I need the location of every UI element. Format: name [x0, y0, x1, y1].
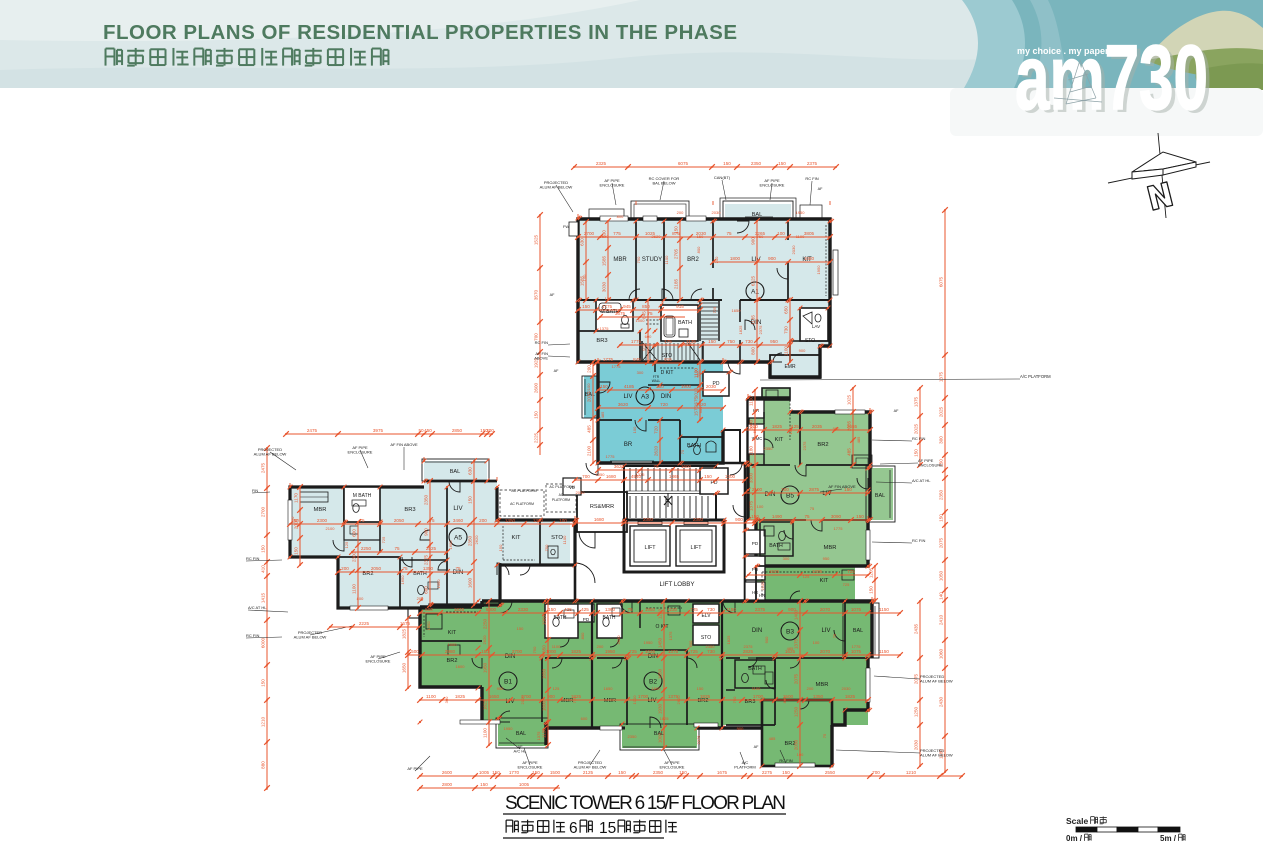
svg-text:3460: 3460	[453, 518, 464, 523]
svg-text:2300: 2300	[352, 551, 357, 562]
svg-text:900: 900	[764, 636, 769, 643]
svg-text:BAL: BAL	[875, 493, 885, 499]
svg-text:BR3: BR3	[596, 338, 607, 344]
svg-text:450: 450	[424, 428, 432, 433]
svg-text:100: 100	[559, 518, 567, 523]
svg-text:HR: HR	[759, 593, 765, 598]
svg-text:ENCLOSURE: ENCLOSURE	[660, 765, 685, 770]
svg-text:2350: 2350	[693, 517, 704, 522]
svg-text:1100: 1100	[552, 644, 561, 649]
svg-text:1375: 1375	[749, 500, 754, 511]
svg-text:1250: 1250	[914, 706, 919, 717]
svg-text:1000: 1000	[546, 649, 557, 654]
svg-text:PLATFORM: PLATFORM	[734, 765, 755, 770]
svg-text:1350: 1350	[505, 518, 516, 523]
svg-text:1625: 1625	[483, 699, 488, 710]
svg-text:1950: 1950	[645, 607, 656, 612]
svg-text:1625: 1625	[769, 569, 780, 574]
svg-text:1775: 1775	[606, 454, 616, 459]
svg-text:D KIT: D KIT	[661, 370, 674, 376]
svg-text:1650: 1650	[402, 662, 407, 673]
svg-text:1700: 1700	[638, 694, 649, 699]
svg-text:2100: 2100	[326, 526, 336, 531]
svg-text:750: 750	[732, 696, 737, 703]
svg-text:485: 485	[600, 411, 605, 418]
svg-text:STUDY: STUDY	[642, 257, 662, 263]
svg-text:AF PIPE: AF PIPE	[407, 766, 423, 771]
svg-text:1775: 1775	[834, 526, 844, 531]
svg-text:FLOOR PLANS OF RESIDENTIAL PRO: FLOOR PLANS OF RESIDENTIAL PROPERTIES IN…	[103, 21, 737, 44]
svg-text:2620: 2620	[474, 535, 479, 545]
svg-text:2350: 2350	[706, 644, 716, 649]
svg-text:RC FIN: RC FIN	[805, 176, 818, 181]
svg-text:1675: 1675	[717, 770, 728, 775]
svg-text:1100: 1100	[694, 368, 699, 378]
svg-text:1100: 1100	[562, 535, 567, 544]
svg-text:LIV: LIV	[453, 505, 463, 512]
svg-text:BAL: BAL	[752, 212, 763, 218]
svg-text:2375: 2375	[802, 441, 807, 451]
svg-text:720: 720	[654, 426, 659, 434]
svg-text:ELV: ELV	[701, 613, 711, 619]
svg-text:2070: 2070	[820, 607, 831, 612]
svg-text:2350: 2350	[628, 734, 638, 739]
svg-text:485: 485	[847, 448, 852, 456]
svg-text:485: 485	[587, 425, 592, 433]
svg-text:LIFT: LIFT	[690, 545, 702, 551]
svg-text:RC FIN: RC FIN	[535, 340, 548, 345]
svg-text:AF FIN ABOVE: AF FIN ABOVE	[390, 442, 418, 447]
svg-text:1825: 1825	[454, 607, 465, 612]
svg-text:150: 150	[856, 514, 864, 519]
svg-text:2620: 2620	[676, 695, 681, 705]
svg-text:150: 150	[517, 626, 524, 631]
svg-text:3620: 3620	[618, 402, 629, 407]
svg-text:BATH: BATH	[603, 615, 616, 621]
svg-text:300: 300	[783, 556, 790, 561]
svg-text:2350: 2350	[764, 446, 774, 451]
svg-text:2375: 2375	[744, 644, 754, 649]
svg-text:BATH: BATH	[554, 615, 567, 621]
svg-text:725: 725	[629, 649, 637, 654]
svg-text:150: 150	[480, 782, 488, 787]
svg-text:125: 125	[605, 296, 612, 301]
svg-text:485: 485	[769, 736, 776, 741]
svg-text:2250: 2250	[483, 618, 488, 629]
svg-text:300: 300	[637, 370, 644, 375]
svg-text:BR2: BR2	[698, 698, 709, 704]
svg-text:1585: 1585	[602, 255, 607, 266]
svg-text:900: 900	[751, 237, 756, 245]
svg-text:200: 200	[587, 365, 592, 373]
svg-text:75: 75	[832, 633, 837, 638]
svg-text:425: 425	[564, 607, 572, 612]
svg-text:1005: 1005	[519, 782, 530, 787]
svg-text:1250: 1250	[794, 706, 799, 717]
svg-text:300: 300	[781, 487, 789, 492]
svg-text:2825: 2825	[743, 649, 754, 654]
svg-text:1230: 1230	[667, 607, 678, 612]
svg-text:PLATFORM: PLATFORM	[552, 498, 570, 502]
svg-text:SCENIC TOWER 6 15/F FLOOR PLA: SCENIC TOWER 6 15/F FLOOR PLAN	[505, 793, 786, 814]
svg-text:1210: 1210	[906, 770, 917, 775]
svg-text:1150: 1150	[726, 607, 736, 612]
svg-text:6075: 6075	[939, 276, 944, 287]
svg-text:2705: 2705	[674, 248, 679, 259]
svg-text:6000: 6000	[261, 637, 266, 648]
svg-text:880: 880	[261, 761, 266, 769]
svg-text:1000: 1000	[436, 579, 441, 589]
svg-text:BR: BR	[624, 442, 633, 448]
svg-text:1415: 1415	[261, 592, 266, 603]
svg-text:2600: 2600	[534, 382, 539, 393]
svg-text:3090: 3090	[831, 514, 842, 519]
svg-text:100: 100	[777, 231, 785, 236]
svg-text:1365: 1365	[669, 474, 680, 479]
svg-text:AF: AF	[550, 293, 556, 297]
svg-text:150: 150	[708, 339, 716, 344]
svg-text:1900: 1900	[681, 384, 692, 389]
svg-text:2075: 2075	[939, 537, 944, 548]
svg-text:2030: 2030	[576, 490, 586, 495]
svg-text:3570: 3570	[534, 289, 539, 300]
svg-text:6: 6	[569, 820, 578, 837]
svg-text:2030: 2030	[794, 739, 799, 750]
svg-text:1950: 1950	[483, 662, 488, 673]
svg-text:2525: 2525	[426, 546, 437, 551]
svg-text:75: 75	[680, 449, 685, 454]
svg-text:2300: 2300	[317, 518, 328, 523]
svg-text:1825: 1825	[738, 325, 743, 335]
svg-text:STO: STO	[805, 338, 815, 344]
svg-text:1650: 1650	[732, 308, 742, 313]
svg-text:1600: 1600	[652, 686, 662, 691]
svg-text:730: 730	[745, 339, 753, 344]
svg-text:845: 845	[633, 357, 641, 362]
svg-text:2350: 2350	[643, 517, 654, 522]
svg-text:1000: 1000	[658, 732, 663, 743]
svg-text:AC PLATFORM: AC PLATFORM	[511, 489, 536, 493]
svg-text:A5: A5	[454, 534, 462, 541]
svg-text:1650: 1650	[658, 668, 663, 679]
svg-text:1375: 1375	[668, 649, 679, 654]
svg-text:2875: 2875	[809, 487, 820, 492]
svg-text:MBR: MBR	[604, 698, 616, 704]
svg-text:PD: PD	[583, 617, 590, 622]
svg-text:150: 150	[697, 686, 704, 691]
svg-text:1700: 1700	[753, 694, 764, 699]
svg-text:800: 800	[751, 347, 756, 355]
svg-text:200: 200	[597, 644, 604, 649]
svg-text:75: 75	[804, 514, 810, 519]
svg-text:915: 915	[676, 304, 684, 309]
svg-text:1650: 1650	[489, 694, 500, 699]
svg-text:2035: 2035	[847, 420, 852, 431]
svg-text:RC FIN: RC FIN	[246, 633, 259, 638]
svg-text:75: 75	[394, 546, 400, 551]
svg-text:1680: 1680	[606, 474, 617, 479]
svg-text:1825: 1825	[772, 424, 783, 429]
svg-text:150: 150	[261, 545, 266, 553]
svg-text:900: 900	[424, 528, 429, 536]
svg-text:140: 140	[939, 592, 944, 600]
svg-text:RC FIN: RC FIN	[246, 556, 259, 561]
svg-text:485: 485	[856, 436, 861, 443]
svg-text:2350: 2350	[751, 161, 762, 166]
svg-text:ALUM AF BELOW: ALUM AF BELOW	[920, 753, 953, 758]
svg-text:RC FIN: RC FIN	[912, 538, 925, 543]
svg-text:2330: 2330	[518, 607, 529, 612]
svg-text:175: 175	[664, 339, 672, 344]
svg-text:2375: 2375	[758, 325, 763, 335]
svg-text:1770: 1770	[509, 770, 520, 775]
svg-text:2030: 2030	[616, 635, 621, 645]
svg-text:150: 150	[778, 161, 786, 166]
svg-text:PD: PD	[711, 480, 718, 486]
svg-text:ALUM AF BELOW: ALUM AF BELOW	[574, 765, 607, 770]
svg-text:1250: 1250	[658, 608, 663, 619]
svg-text:75: 75	[810, 506, 815, 511]
svg-text:2350: 2350	[468, 535, 473, 546]
svg-text:LIFT: LIFT	[644, 545, 656, 551]
svg-text:1075: 1075	[851, 607, 862, 612]
svg-text:725: 725	[381, 536, 386, 543]
svg-text:2350: 2350	[653, 770, 664, 775]
svg-text:800: 800	[357, 596, 364, 601]
svg-text:1100: 1100	[352, 584, 357, 594]
svg-text:1010: 1010	[694, 387, 699, 398]
svg-text:150: 150	[704, 474, 712, 479]
svg-text:1825: 1825	[660, 716, 670, 721]
svg-text:1000: 1000	[632, 695, 637, 705]
svg-text:1950: 1950	[796, 210, 806, 215]
svg-text:RC FIN: RC FIN	[912, 436, 925, 441]
svg-text:2030: 2030	[842, 686, 852, 691]
svg-text:1100: 1100	[483, 728, 488, 738]
svg-text:150: 150	[600, 384, 608, 389]
svg-text:150: 150	[869, 586, 874, 594]
svg-text:150: 150	[548, 607, 556, 612]
svg-text:1950: 1950	[816, 265, 821, 275]
svg-text:150: 150	[618, 770, 626, 775]
svg-text:KIT: KIT	[820, 578, 829, 584]
svg-text:750: 750	[636, 256, 641, 263]
svg-text:1600: 1600	[681, 464, 692, 469]
svg-text:200: 200	[479, 518, 487, 523]
svg-text:3805: 3805	[804, 231, 815, 236]
svg-text:2100: 2100	[586, 383, 591, 393]
svg-text:PD: PD	[752, 541, 759, 546]
svg-text:1060: 1060	[939, 648, 944, 659]
svg-text:5m /: 5m /	[1160, 834, 1177, 843]
svg-text:2275: 2275	[762, 770, 773, 775]
svg-text:150: 150	[492, 770, 500, 775]
svg-text:2030: 2030	[712, 210, 722, 215]
svg-text:1650: 1650	[604, 686, 614, 691]
svg-text:MBR: MBR	[824, 545, 837, 551]
svg-text:1775: 1775	[602, 304, 613, 309]
svg-text:1350: 1350	[813, 694, 824, 699]
svg-text:915: 915	[664, 357, 672, 362]
svg-text:1100: 1100	[784, 346, 789, 356]
svg-text:2350: 2350	[686, 342, 696, 347]
svg-text:2980: 2980	[445, 649, 456, 654]
svg-text:1210: 1210	[261, 716, 266, 727]
svg-text:100: 100	[797, 752, 804, 757]
svg-text:DIN: DIN	[661, 394, 671, 400]
svg-text:BATH: BATH	[769, 543, 783, 549]
svg-text:100: 100	[813, 640, 820, 645]
svg-text:1000: 1000	[448, 642, 458, 647]
svg-text:WALL: WALL	[652, 379, 661, 383]
svg-text:800: 800	[580, 632, 585, 639]
svg-text:150: 150	[294, 547, 299, 555]
svg-text:MBR: MBR	[816, 682, 829, 688]
svg-text:150: 150	[532, 770, 540, 775]
svg-text:100: 100	[757, 504, 764, 509]
svg-text:1825: 1825	[726, 635, 731, 645]
svg-text:KIT: KIT	[775, 437, 784, 443]
svg-text:1675: 1675	[400, 621, 411, 626]
svg-text:BAL: BAL	[516, 731, 526, 737]
svg-text:Scale: Scale	[1066, 816, 1088, 826]
svg-text:2435: 2435	[914, 623, 919, 634]
svg-text:A1: A1	[751, 288, 759, 295]
svg-text:2025: 2025	[914, 423, 919, 434]
svg-text:AF: AF	[894, 409, 900, 413]
svg-text:1650: 1650	[426, 621, 431, 631]
svg-text:A/C PLATFORM: A/C PLATFORM	[1020, 374, 1051, 379]
svg-text:1600: 1600	[600, 234, 610, 239]
svg-text:STO: STO	[701, 635, 711, 641]
svg-text:1825: 1825	[402, 628, 407, 639]
svg-text:1005: 1005	[479, 770, 490, 775]
svg-text:150: 150	[782, 770, 790, 775]
svg-text:150: 150	[679, 770, 687, 775]
svg-text:1205: 1205	[812, 569, 823, 574]
svg-text:845: 845	[642, 311, 647, 319]
svg-text:2100: 2100	[520, 695, 525, 705]
svg-text:850: 850	[542, 645, 547, 653]
svg-text:1375: 1375	[939, 371, 944, 382]
svg-text:950: 950	[823, 556, 830, 561]
svg-text:150: 150	[534, 411, 539, 419]
svg-text:750: 750	[532, 646, 537, 653]
svg-text:900: 900	[833, 426, 840, 431]
svg-text:2030: 2030	[791, 245, 796, 255]
svg-text:2075: 2075	[794, 673, 799, 684]
svg-text:ENCLOSURE: ENCLOSURE	[366, 659, 391, 664]
svg-text:1170: 1170	[294, 493, 299, 503]
svg-text:2185: 2185	[674, 278, 679, 289]
svg-text:1050: 1050	[939, 570, 944, 581]
svg-text:300: 300	[486, 428, 494, 433]
svg-text:725: 725	[690, 649, 698, 654]
svg-text:2620: 2620	[482, 635, 487, 645]
svg-text:BAL: BAL	[853, 628, 863, 634]
svg-text:75: 75	[726, 231, 732, 236]
svg-text:2475: 2475	[307, 428, 318, 433]
svg-text:150: 150	[723, 161, 731, 166]
svg-text:ENCLOSURE: ENCLOSURE	[518, 765, 543, 770]
svg-text:75: 75	[455, 566, 461, 571]
svg-text:1950: 1950	[605, 649, 616, 654]
svg-text:1825: 1825	[700, 694, 711, 699]
svg-text:75: 75	[822, 733, 827, 738]
svg-text:725: 725	[712, 306, 717, 313]
svg-text:2375: 2375	[696, 735, 701, 745]
svg-text:150: 150	[498, 544, 503, 551]
svg-text:3675: 3675	[615, 311, 626, 316]
svg-text:725: 725	[572, 696, 577, 703]
svg-text:0m /: 0m /	[1066, 834, 1083, 843]
svg-text:775: 775	[613, 231, 621, 236]
svg-text:1525: 1525	[534, 234, 539, 245]
svg-text:200: 200	[417, 596, 424, 601]
svg-text:1150: 1150	[879, 607, 889, 612]
svg-text:300: 300	[444, 696, 449, 703]
svg-text:2070: 2070	[820, 649, 831, 654]
svg-text:1600: 1600	[542, 700, 547, 711]
svg-text:LIV: LIV	[821, 628, 830, 634]
svg-text:AF FIN ABOVE: AF FIN ABOVE	[828, 484, 856, 489]
svg-text:900: 900	[735, 517, 743, 522]
svg-text:2050: 2050	[371, 566, 382, 571]
svg-text:2800: 2800	[442, 782, 453, 787]
svg-text:6075: 6075	[678, 161, 689, 166]
svg-text:1600: 1600	[468, 577, 473, 588]
svg-text:900: 900	[768, 256, 776, 261]
svg-text:1680: 1680	[594, 517, 605, 522]
svg-text:410: 410	[261, 565, 266, 573]
svg-text:2325: 2325	[596, 161, 607, 166]
svg-text:2600: 2600	[442, 770, 453, 775]
svg-text:730: 730	[784, 326, 789, 334]
svg-text:ENCLOSURE: ENCLOSURE	[918, 463, 943, 468]
svg-text:BATH: BATH	[748, 666, 762, 672]
svg-text:1300: 1300	[725, 474, 736, 479]
svg-text:BR2: BR2	[817, 442, 828, 448]
svg-text:B1: B1	[504, 678, 512, 685]
svg-text:1180: 1180	[749, 446, 754, 456]
svg-text:RS&MRR: RS&MRR	[590, 504, 614, 510]
svg-text:RC FIN: RC FIN	[779, 758, 792, 763]
svg-text:125: 125	[344, 541, 349, 548]
svg-text:2030: 2030	[914, 739, 919, 750]
svg-text:700: 700	[872, 770, 880, 775]
svg-text:1375: 1375	[536, 731, 541, 741]
svg-text:BR2: BR2	[687, 257, 699, 263]
svg-text:3300: 3300	[749, 472, 754, 483]
svg-text:1650: 1650	[542, 668, 547, 679]
svg-text:A/C AT HL: A/C AT HL	[248, 605, 267, 610]
svg-text:am730: am730	[1015, 27, 1208, 129]
svg-text:950: 950	[497, 686, 504, 691]
svg-text:BR3: BR3	[404, 507, 415, 513]
svg-text:ABOVE: ABOVE	[534, 356, 548, 361]
svg-text:1825: 1825	[455, 694, 466, 699]
svg-text:725: 725	[843, 582, 850, 587]
svg-text:1950: 1950	[504, 726, 514, 731]
svg-text:2350: 2350	[939, 489, 944, 500]
svg-text:LIV: LIV	[623, 394, 632, 400]
svg-text:950: 950	[290, 516, 295, 523]
svg-text:2100: 2100	[760, 581, 765, 591]
svg-text:AF: AF	[754, 745, 760, 749]
svg-text:2225: 2225	[359, 621, 370, 626]
svg-text:A/C AT HL: A/C AT HL	[912, 478, 931, 483]
svg-text:AC PLATFORM: AC PLATFORM	[549, 485, 574, 489]
